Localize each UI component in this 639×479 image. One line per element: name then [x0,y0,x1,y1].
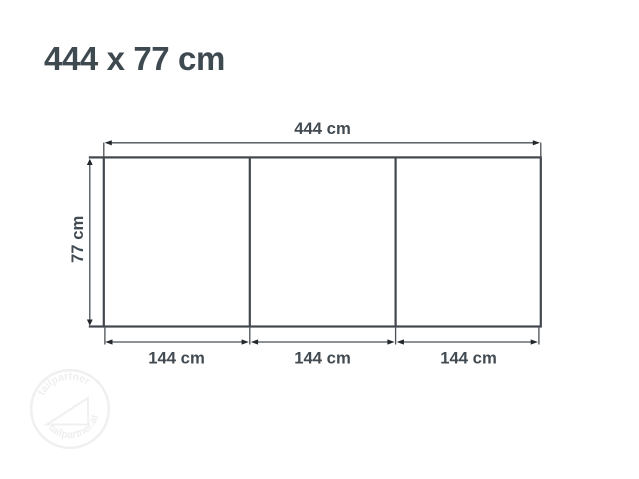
svg-text:144 cm: 144 cm [148,349,205,368]
svg-text:444 x 77 cm: 444 x 77 cm [44,40,225,77]
svg-text:77 cm: 77 cm [68,216,87,263]
svg-text:tailpartner.at: tailpartner.at [45,410,106,447]
svg-text:144 cm: 144 cm [294,349,351,368]
svg-text:144 cm: 144 cm [440,349,497,368]
svg-text:444 cm: 444 cm [294,119,351,138]
